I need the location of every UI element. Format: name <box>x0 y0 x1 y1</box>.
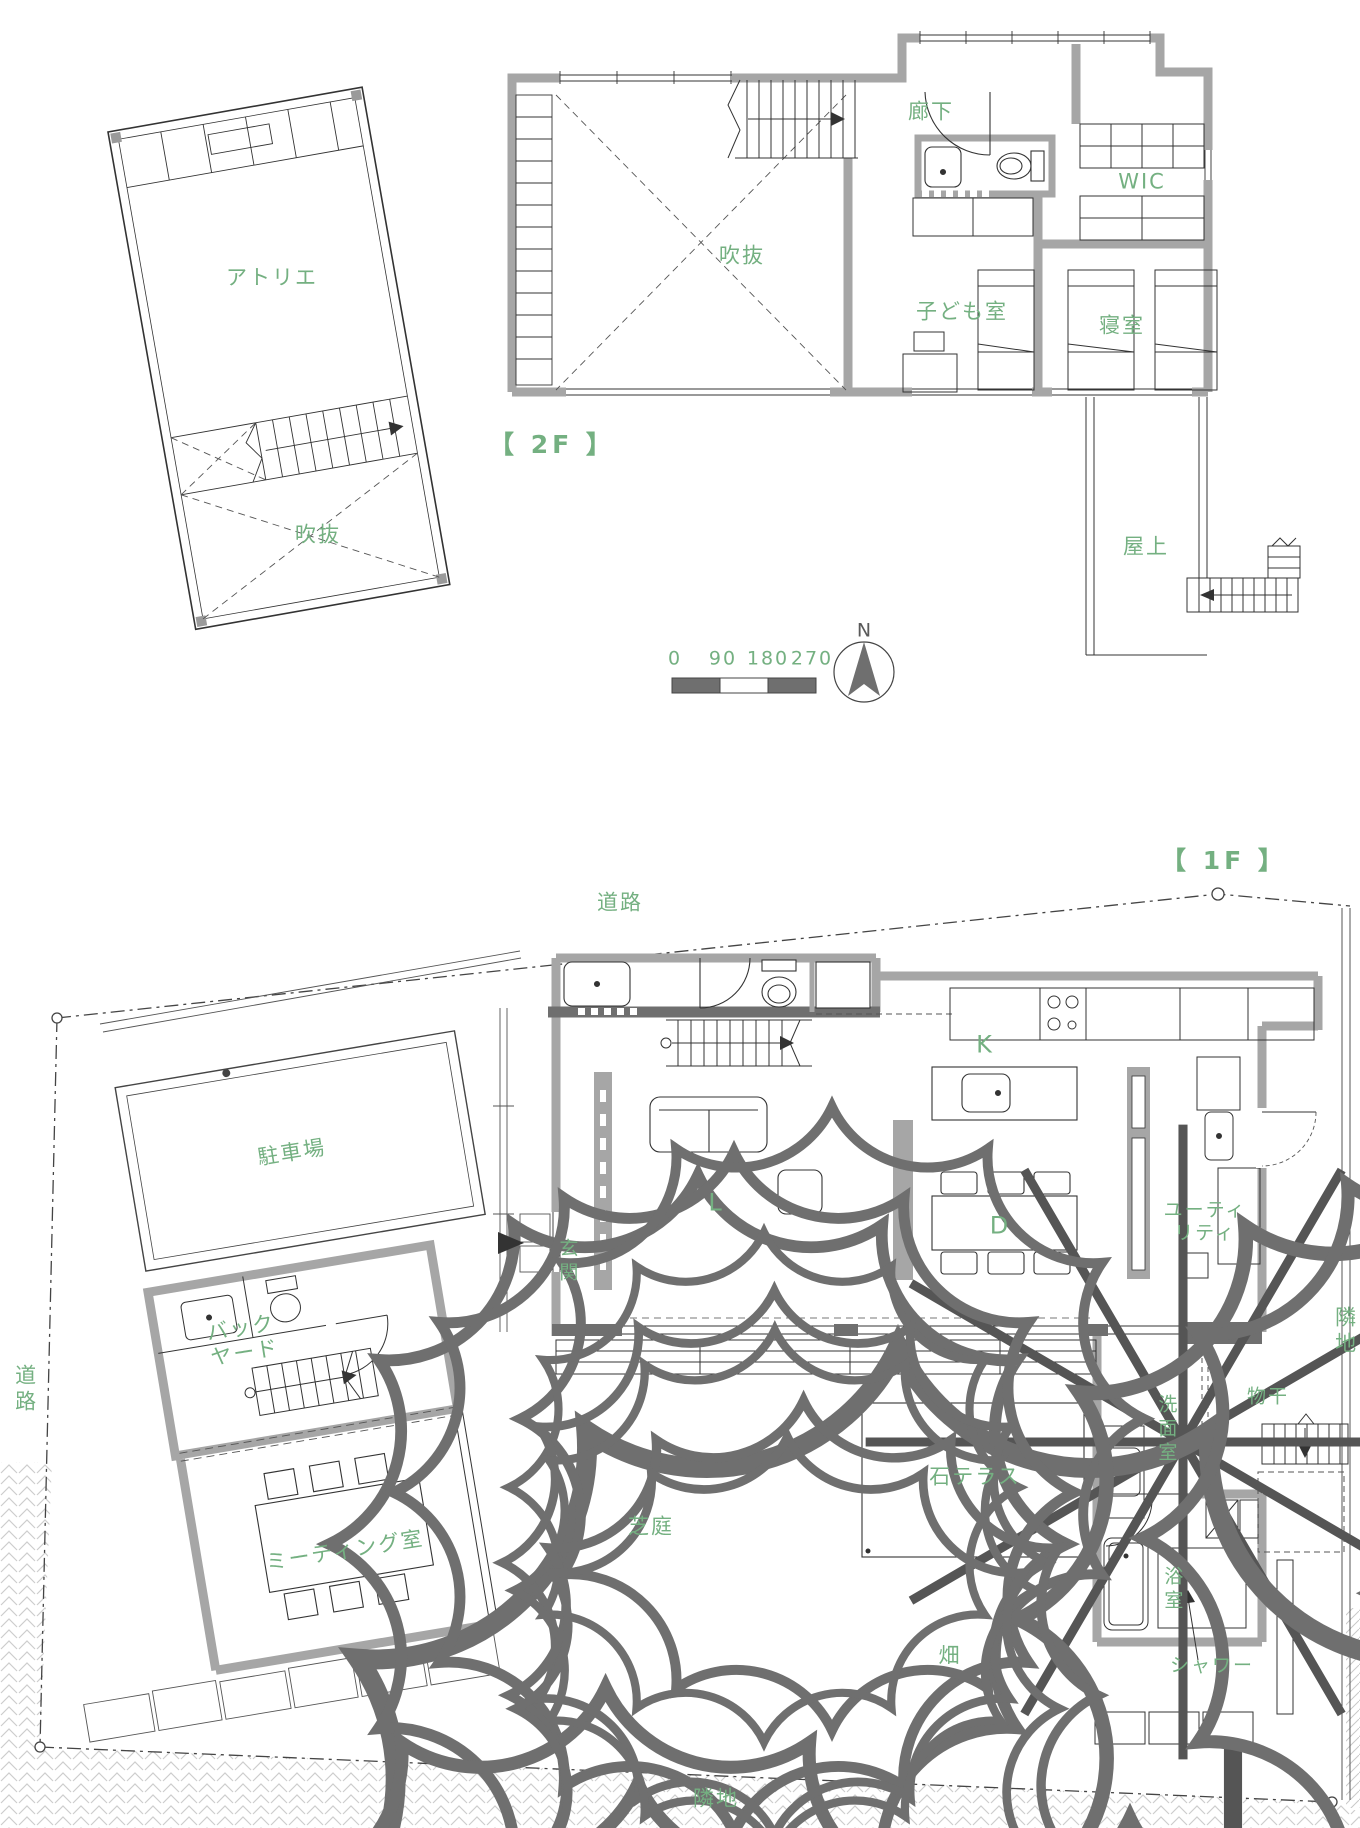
label-kitchen: K <box>976 1031 994 1060</box>
label-adjacent-bottom: 隣地 <box>693 1786 739 1811</box>
floor1-title: 【 1F 】 <box>1161 846 1287 876</box>
label-shower: シャワー <box>1170 1655 1254 1678</box>
label-rooftop: 屋上 <box>1123 534 1169 559</box>
north-needle <box>848 642 880 696</box>
label-drying: 物干 <box>1247 1386 1289 1409</box>
label-utility: ユーティ リティ <box>1164 1199 1247 1245</box>
floor2-title: 【 2F 】 <box>489 430 615 460</box>
label-north: N <box>857 620 871 643</box>
scale-tick-0: 0 <box>668 648 682 671</box>
label-backyard: バック ヤード <box>205 1311 281 1372</box>
scale-tick-90: 90 <box>709 648 737 671</box>
label-stone-terrace: 石テラス <box>929 1464 1021 1489</box>
scale-bar <box>672 678 816 693</box>
label-dining: D <box>990 1212 1010 1241</box>
compass-icon <box>834 642 894 702</box>
label-adjacent-right: 隣地 <box>1331 1306 1356 1358</box>
label-corridor: 廊下 <box>908 99 954 124</box>
floor-plan-drawing <box>0 0 1360 1828</box>
label-atelier: アトリエ <box>226 265 318 290</box>
label-field: 畑 <box>939 1643 962 1668</box>
scale-tick-180: 180 <box>747 648 789 671</box>
label-bedroom: 寝室 <box>1099 313 1145 338</box>
label-void-main: 吹抜 <box>719 243 765 268</box>
label-living: L <box>708 1189 723 1218</box>
label-washroom: 洗面室 <box>1155 1394 1178 1466</box>
label-bathroom: 浴室 <box>1161 1566 1184 1614</box>
2f-plan <box>512 31 1300 655</box>
label-kids-room: 子ども室 <box>916 299 1008 324</box>
scale-tick-270: 270 <box>791 648 833 671</box>
label-wic: WIC <box>1118 169 1166 194</box>
label-lawn: 芝庭 <box>628 1514 674 1539</box>
label-road-top: 道路 <box>597 890 643 915</box>
label-void-left: 吹抜 <box>295 522 341 547</box>
label-entrance: 玄関 <box>556 1238 579 1286</box>
floor-plan-page: アトリエ 吹抜 吹抜 廊下 WIC 子ども室 寝室 屋上 【 2F 】 0 90… <box>0 0 1360 1828</box>
rooftop-terrace <box>1086 397 1300 655</box>
label-road-left: 道路 <box>11 1364 36 1416</box>
2f-atelier-building <box>108 87 450 629</box>
